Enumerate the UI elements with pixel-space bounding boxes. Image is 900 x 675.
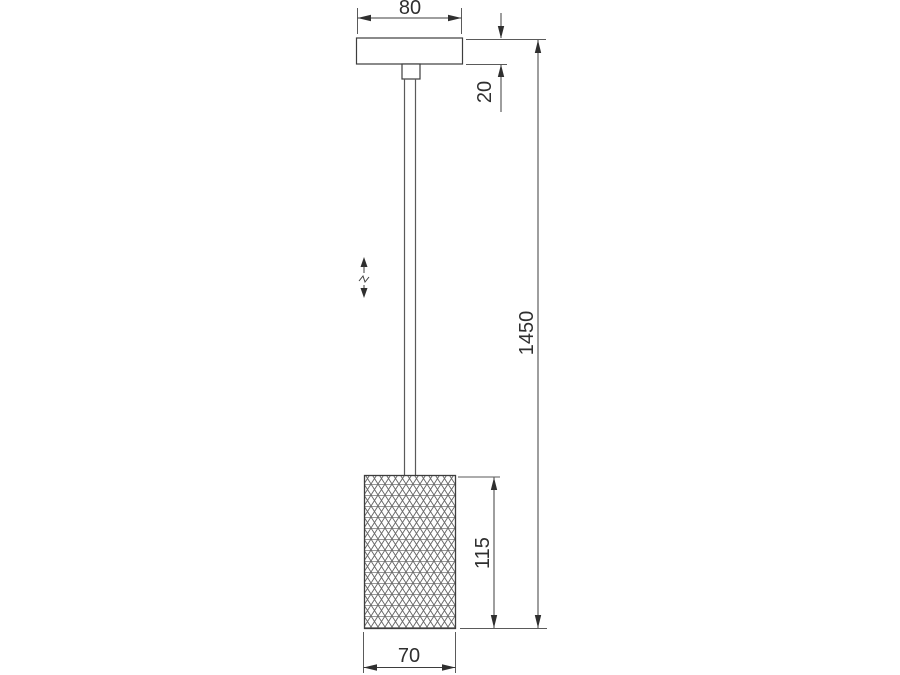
arrow-down-icon xyxy=(491,615,497,628)
arrow-down-icon xyxy=(498,26,504,39)
lamp-shade xyxy=(365,476,456,629)
dimension-value-shade-height: 115 xyxy=(472,537,494,569)
adjust-up-arrow-icon xyxy=(361,257,368,267)
canopy-stem xyxy=(402,64,420,79)
arrow-left-icon xyxy=(364,664,378,670)
break-mark xyxy=(359,276,369,282)
arrow-right-icon xyxy=(442,664,456,670)
dimension-value-shade-width: 70 xyxy=(398,645,420,667)
adjustable-height-symbol xyxy=(359,257,369,298)
arrow-up-icon xyxy=(498,65,504,78)
arrow-up-icon xyxy=(535,40,541,53)
arrow-up-icon xyxy=(491,478,497,491)
arrow-right-icon xyxy=(448,15,462,21)
dimension-value-overall-height: 1450 xyxy=(516,311,538,356)
dimension-shade-width: 70 xyxy=(364,632,456,673)
dimension-value-canopy-height: 20 xyxy=(474,81,496,103)
lamp-outline xyxy=(357,38,463,629)
drawing-canvas: 80 20 1450 115 xyxy=(0,0,900,675)
dimension-canopy-height: 20 xyxy=(466,13,507,112)
dimension-shade-height: 115 xyxy=(458,477,547,629)
ceiling-canopy xyxy=(357,38,463,64)
arrow-left-icon xyxy=(358,15,372,21)
adjust-down-arrow-icon xyxy=(361,288,368,298)
arrow-down-icon xyxy=(535,615,541,628)
dimension-canopy-width: 80 xyxy=(358,0,462,34)
dimension-value-canopy-width: 80 xyxy=(399,0,421,19)
pendant-lamp-dimension-drawing: 80 20 1450 115 xyxy=(0,0,900,675)
